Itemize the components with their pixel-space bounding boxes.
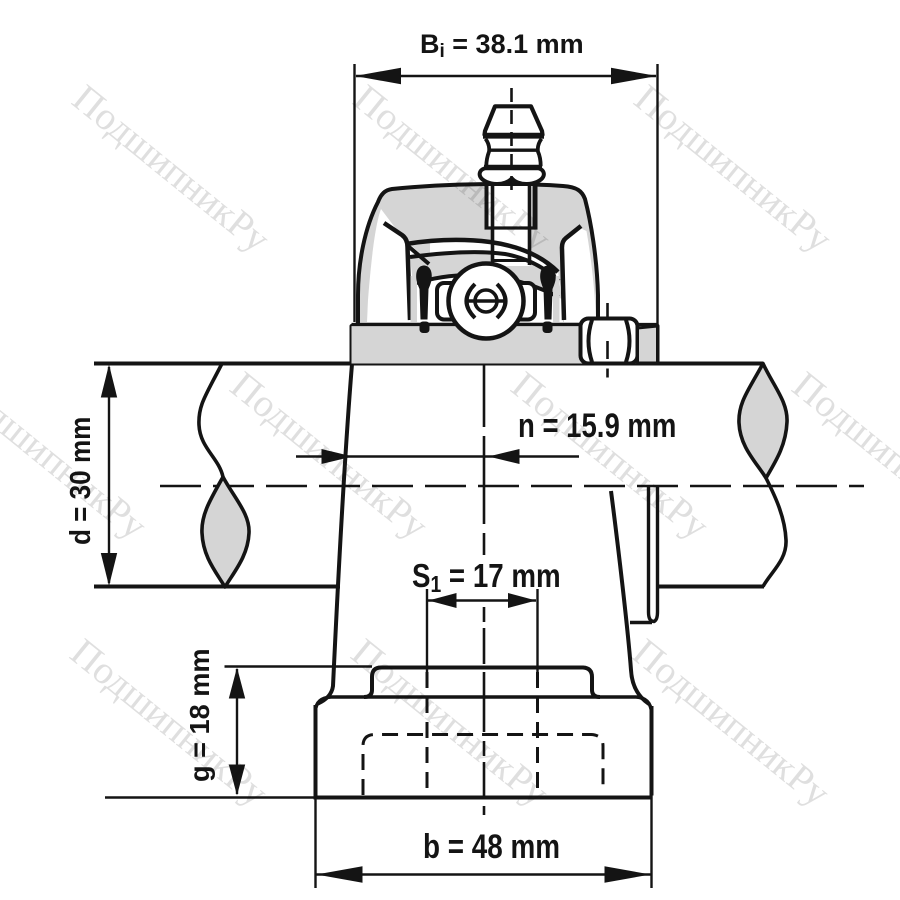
- svg-text:Bi = 38.1 mm: Bi = 38.1 mm: [420, 29, 584, 62]
- svg-text:b = 48 mm: b = 48 mm: [423, 827, 560, 865]
